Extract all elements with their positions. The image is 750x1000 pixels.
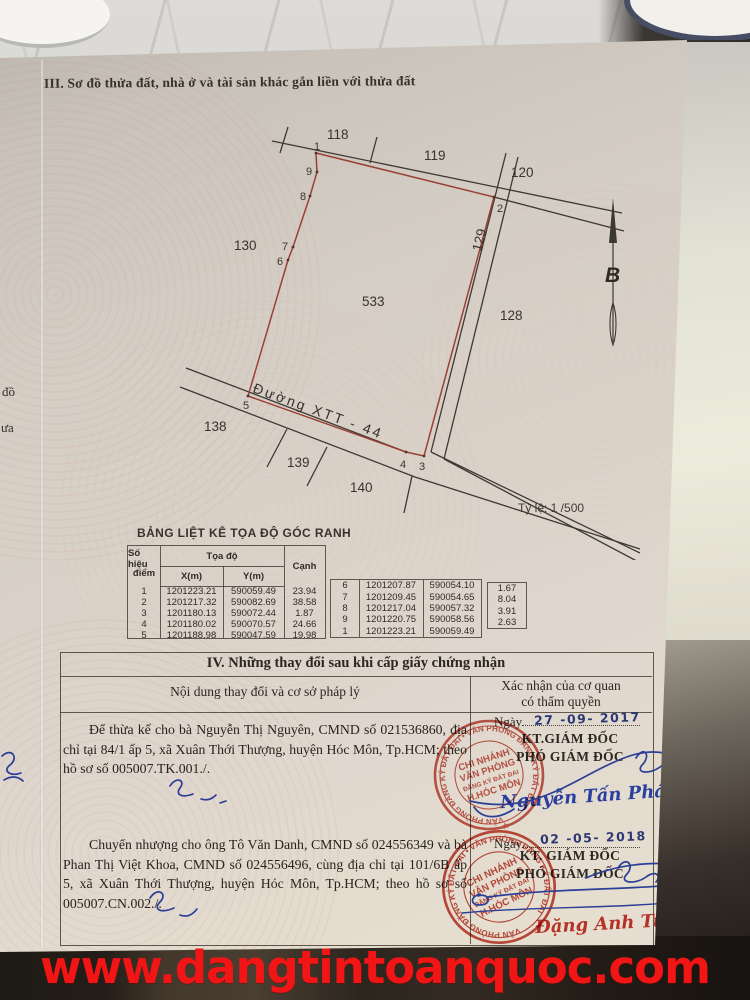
north-label: B (605, 264, 620, 287)
coord-table-title: BẢNG LIỆT KÊ TỌA ĐỘ GÓC RANH (137, 526, 351, 540)
parcel-label: 140 (350, 480, 373, 495)
white-dish (610, 0, 750, 40)
parcel-label: 128 (500, 308, 523, 323)
section4-col1-header: Nội dung thay đổi và cơ sở pháp lý (66, 684, 464, 700)
certificate-page: đồ ưa N III. Sơ đồ thửa đất, nhà ở và tà… (0, 0, 750, 1000)
paper-fold-crease (40, 60, 44, 948)
scale-label: Tỷ lệ: 1 /500 (518, 501, 584, 515)
photo-scene: đồ ưa N III. Sơ đồ thửa đất, nhà ở và tà… (0, 0, 750, 1000)
survey-lines (180, 127, 648, 560)
point-label: 9 (306, 166, 312, 178)
entry1-content: Để thừa kế cho bà Nguyễn Thị Nguyên, CMN… (63, 720, 467, 779)
edge-text-fragment: đồ (2, 384, 15, 400)
parcel-label: 130 (234, 238, 257, 253)
col-header-point: Số hiệu (128, 552, 160, 566)
point-label: 1 (314, 141, 320, 153)
section4-title: IV. Những thay đổi sau khi cấp giấy chứn… (60, 655, 652, 672)
parcel-label: 119 (424, 148, 446, 163)
parcel-label: 138 (204, 419, 227, 434)
parcel-label-rotated: 129 (469, 227, 489, 252)
parcel-label: 120 (511, 165, 534, 180)
coord-rows-left: 11201223.21590059.4923.94 21201217.32590… (128, 586, 325, 637)
road-name-label: Đường XTT - 44 (251, 380, 386, 442)
parcel-label: 533 (362, 294, 385, 309)
parcel-label: 118 (327, 127, 349, 142)
parcel-label: 139 (287, 455, 310, 470)
point-label: 6 (277, 256, 283, 268)
col-header-x: X(m) (160, 566, 223, 586)
point-label: 7 (282, 241, 288, 253)
parcel-sketch: B 1 2 3 4 5 6 7 8 9 (175, 120, 665, 560)
coord-rows-right: 61201207.87590054.10 71201209.45590054.6… (331, 580, 481, 637)
coord-table-left: Số hiệu điểm Tọa độ X(m) Y(m) Cạnh 11201… (127, 545, 326, 639)
col-header-coords: Tọa độ (160, 546, 284, 566)
edge-text-fragment: ưa (1, 420, 14, 436)
col-header-y: Y(m) (223, 566, 284, 586)
watermark-url: www.dangtintoanquoc.com (0, 941, 750, 994)
point-label: 4 (400, 459, 406, 471)
point-label: 8 (300, 191, 306, 203)
entry2-content: Chuyển nhượng cho ông Tô Văn Danh, CMND … (63, 835, 467, 913)
coord-table-edge-box: 1.67 8.04 3.91 2.63 (487, 582, 527, 629)
section3-title: III. Sơ đồ thửa đất, nhà ở và tài sản kh… (44, 72, 564, 92)
point-label: 5 (243, 400, 249, 412)
dish-rim (624, 0, 750, 40)
point-label: 2 (497, 203, 503, 215)
col-header-edge: Cạnh (284, 546, 325, 586)
point-label: 3 (419, 461, 425, 473)
north-arrow: B (605, 198, 620, 345)
coord-table-right: 61201207.87590054.10 71201209.45590054.6… (330, 579, 482, 638)
